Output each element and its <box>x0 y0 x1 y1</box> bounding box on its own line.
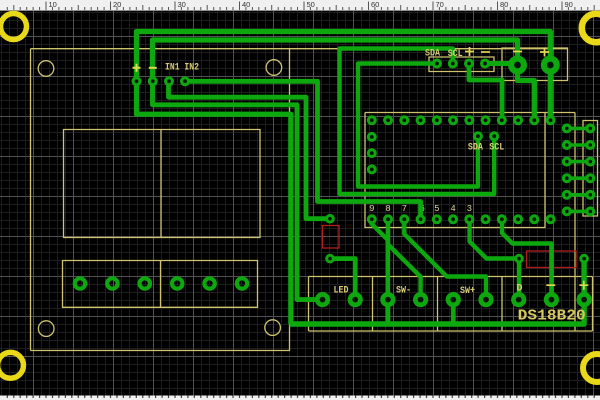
svg-text:70: 70 <box>436 0 444 9</box>
svg-text:LED: LED <box>334 286 349 297</box>
svg-text:50: 50 <box>307 0 315 9</box>
svg-text:30: 30 <box>178 0 186 9</box>
svg-text:90: 90 <box>565 0 573 9</box>
svg-text:4: 4 <box>450 204 455 214</box>
svg-text:40: 40 <box>242 0 250 9</box>
svg-text:9: 9 <box>369 204 374 214</box>
svg-text:5: 5 <box>434 204 439 214</box>
svg-text:SW+: SW+ <box>460 286 475 297</box>
svg-text:DS18B20: DS18B20 <box>518 308 586 325</box>
svg-text:SDA: SDA <box>468 143 483 154</box>
svg-text:SCL: SCL <box>448 49 463 60</box>
svg-text:8: 8 <box>385 204 390 214</box>
svg-text:10: 10 <box>49 0 57 9</box>
svg-text:D: D <box>516 284 522 295</box>
svg-text:IN1 IN2: IN1 IN2 <box>165 63 199 74</box>
svg-text:SDA: SDA <box>425 49 440 60</box>
svg-text:7: 7 <box>402 204 407 214</box>
svg-text:80: 80 <box>500 0 508 9</box>
svg-text:SCL: SCL <box>489 143 504 154</box>
svg-text:60: 60 <box>371 0 379 9</box>
svg-text:3: 3 <box>467 204 472 214</box>
svg-text:20: 20 <box>113 0 121 9</box>
svg-text:SW-: SW- <box>396 286 411 297</box>
